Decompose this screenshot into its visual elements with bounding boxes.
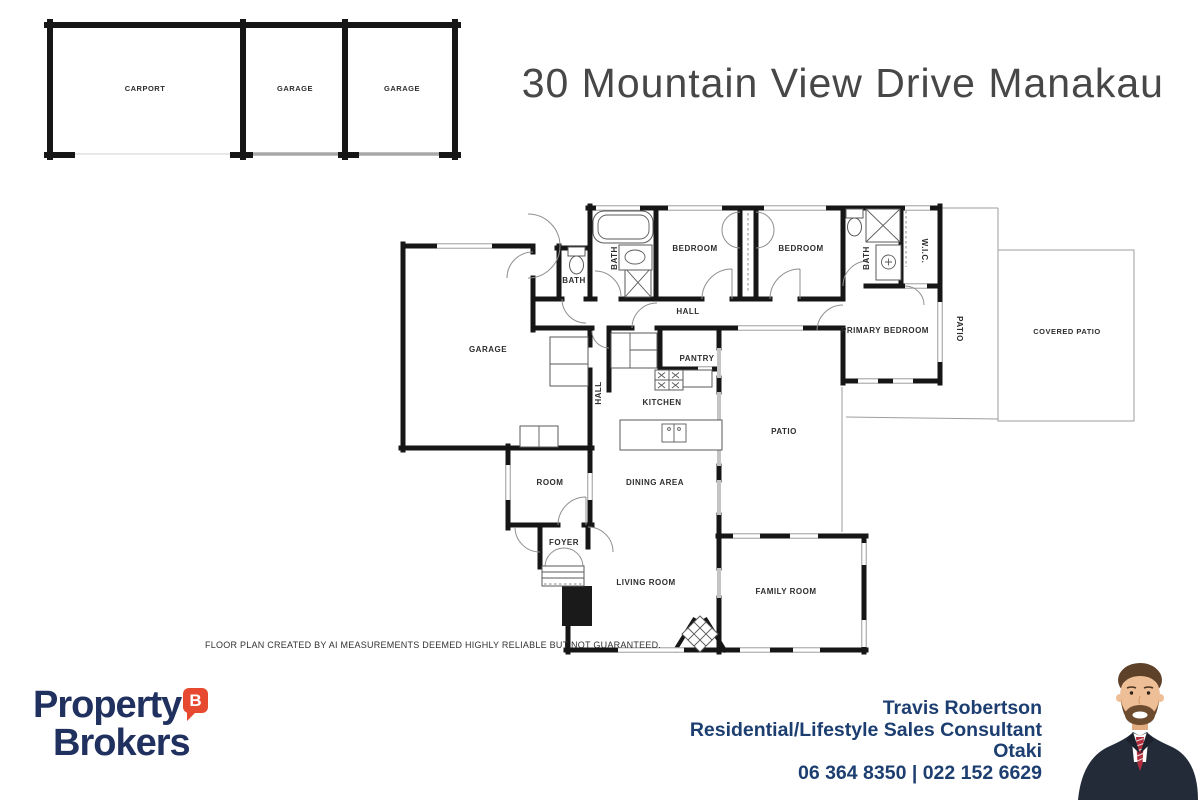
room-label-hall: HALL — [676, 307, 699, 316]
room-label-garage-left: GARAGE — [277, 84, 313, 93]
cooktop-icon — [655, 370, 683, 390]
room-label-bath-main: BATH — [610, 246, 619, 270]
room-label-garage-right: GARAGE — [384, 84, 420, 93]
logo-bubble-icon: B — [183, 688, 208, 713]
room-label-patio: PATIO — [771, 427, 797, 436]
room-label-patio-side: PATIO — [955, 316, 964, 342]
room-label-primary-bedroom: PRIMARY BEDROOM — [841, 326, 929, 335]
room-label-garage: GARAGE — [469, 345, 507, 354]
bathtub-icon — [593, 211, 653, 243]
room-label-dining-area: DINING AREA — [626, 478, 684, 487]
room-label-wic: W.I.C. — [920, 239, 929, 264]
flyer-page: { "title": "30 Mountain View Drive Manak… — [0, 0, 1200, 800]
property-brokers-logo: Property Brokers B — [33, 686, 253, 762]
disclaimer-text: FLOOR PLAN CREATED BY AI MEASUREMENTS DE… — [205, 640, 661, 650]
room-label-bedroom-2: BEDROOM — [778, 244, 823, 253]
room-label-hall-small: HALL — [594, 381, 603, 404]
agent-role: Residential/Lifestyle Sales Consultant — [690, 720, 1042, 742]
agent-phone: 06 364 8350 | 022 152 6629 — [690, 763, 1042, 785]
agent-info: Travis Robertson Residential/Lifestyle S… — [690, 698, 1042, 784]
floor-plan: CARPORT GARAGE GARAGE BATH BATH BEDROOM … — [0, 0, 1200, 800]
room-label-pantry: PANTRY — [680, 354, 715, 363]
room-label-room: ROOM — [537, 478, 564, 487]
logo-bubble-tail — [187, 712, 196, 721]
room-label-bath-ensuite: BATH — [862, 246, 871, 270]
agent-photo — [1076, 642, 1200, 800]
room-label-kitchen: KITCHEN — [642, 398, 681, 407]
room-label-covered-patio: COVERED PATIO — [1033, 327, 1100, 336]
room-label-bedroom-1: BEDROOM — [672, 244, 717, 253]
fireplace-icon — [682, 616, 718, 652]
chimney-block — [562, 586, 592, 626]
garage-storage — [520, 337, 588, 447]
room-label-carport: CARPORT — [125, 84, 166, 93]
room-label-family-room: FAMILY ROOM — [755, 587, 816, 596]
logo-word-property: Property — [33, 686, 253, 724]
agent-name: Travis Robertson — [690, 698, 1042, 720]
entry-steps — [542, 566, 584, 586]
agent-portrait — [1078, 663, 1198, 800]
room-label-bath-small: BATH — [562, 276, 586, 285]
agent-location: Otaki — [690, 741, 1042, 763]
logo-word-brokers: Brokers — [53, 724, 253, 762]
room-label-living-room: LIVING ROOM — [616, 578, 675, 587]
room-label-foyer: FOYER — [549, 538, 579, 547]
kitchen-island — [620, 420, 722, 450]
